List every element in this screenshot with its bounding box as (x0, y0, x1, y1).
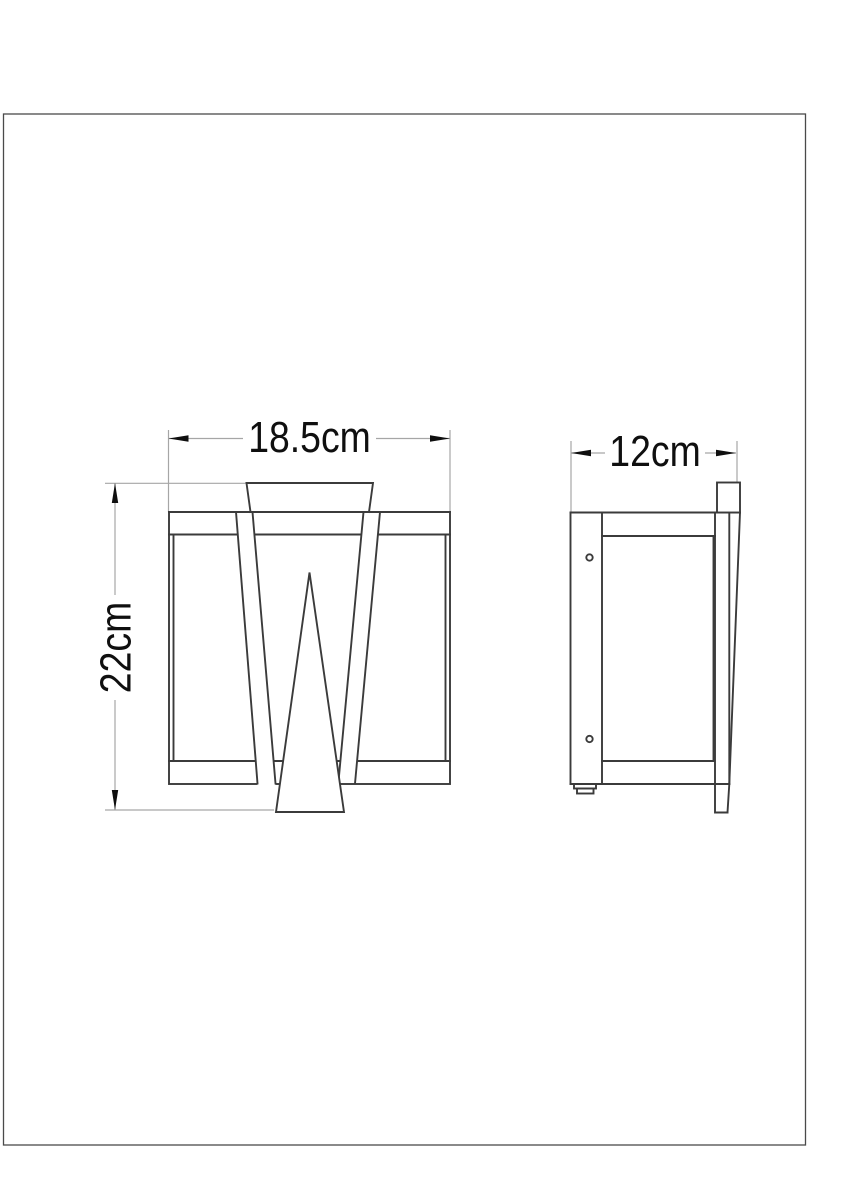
side-strap-top-tab (717, 483, 740, 513)
dim-width-arrow-right (430, 435, 450, 442)
side-view: 12cm (571, 426, 741, 812)
side-back-plate (571, 513, 603, 785)
side-connector-body (577, 789, 594, 794)
dim-depth-arrow-left (571, 450, 591, 457)
dim-depth-label: 12cm (609, 426, 700, 476)
side-geometry (571, 483, 741, 813)
drawing-canvas: 18.5cm 22cm (0, 0, 848, 1200)
dim-width-label: 18.5cm (248, 412, 371, 462)
side-strap-lower-end (715, 784, 728, 813)
front-view: 18.5cm 22cm (91, 412, 450, 812)
dim-height-arrow-top (112, 483, 118, 503)
dim-width-arrow-left (169, 435, 189, 442)
dim-depth-arrow-right (716, 450, 736, 457)
side-depth-dimension: 12cm (571, 426, 737, 512)
front-canopy (247, 483, 374, 512)
dim-height-arrow-bottom (112, 790, 118, 810)
front-geometry (169, 483, 450, 812)
dim-height-label: 22cm (91, 602, 141, 693)
drawing-sheet: 18.5cm 22cm (0, 0, 848, 1200)
